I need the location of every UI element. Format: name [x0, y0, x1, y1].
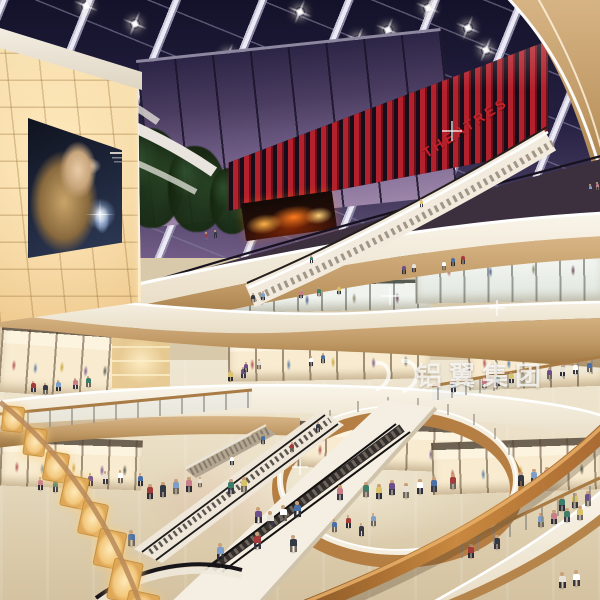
watermark: 铝翼集团	[360, 350, 550, 396]
wood-handrail	[305, 428, 600, 600]
handrail-highlight	[303, 423, 600, 600]
watermark-logo-icon	[360, 356, 414, 390]
amber-rail-cap	[0, 402, 140, 600]
watermark-text: 铝翼集团	[416, 356, 548, 393]
handrail-shadow	[310, 434, 600, 600]
foreground-rails	[0, 0, 600, 600]
mall-atrium-rendering: THEATRES TAI TAI	[0, 0, 600, 600]
